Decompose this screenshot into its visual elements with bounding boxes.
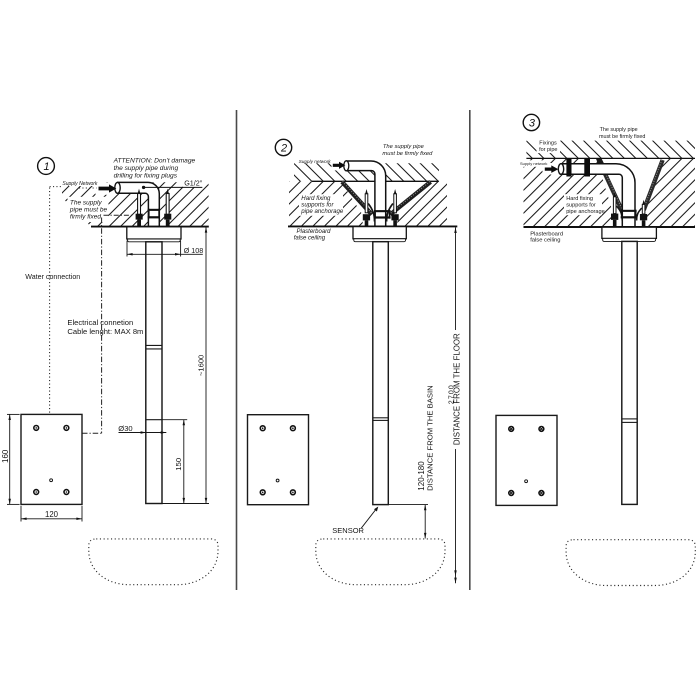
svg-text:Cable lenght: MAX 8m: Cable lenght: MAX 8m: [67, 327, 143, 336]
svg-text:The supply pipe: The supply pipe: [600, 127, 638, 133]
svg-text:Supply Network: Supply Network: [62, 181, 98, 187]
svg-text:ATTENTION: Don’t damage: ATTENTION: Don’t damage: [113, 157, 196, 164]
svg-text:Supply network: Supply network: [520, 161, 547, 166]
svg-text:G1/2”: G1/2”: [184, 179, 203, 188]
svg-text:Water connection: Water connection: [25, 273, 80, 281]
svg-text:150: 150: [174, 458, 183, 471]
svg-text:pipe must be: pipe must be: [69, 207, 108, 214]
svg-text:The supply pipe: The supply pipe: [383, 144, 425, 150]
svg-text:3: 3: [529, 118, 536, 130]
svg-text:Ø30: Ø30: [118, 424, 132, 433]
svg-text:must be firmly fixed: must be firmly fixed: [382, 151, 433, 157]
svg-text:The supply: The supply: [70, 199, 103, 206]
svg-text:DISTANCE FROM THE FLOOR: DISTANCE FROM THE FLOOR: [452, 333, 461, 445]
svg-text:120: 120: [45, 510, 59, 519]
svg-text:Plasterboard: Plasterboard: [297, 229, 332, 235]
svg-text:DISTANCE FROM THE BASIN: DISTANCE FROM THE BASIN: [426, 385, 435, 491]
svg-text:pipe anchorage: pipe anchorage: [300, 208, 344, 215]
svg-text:false ceiling: false ceiling: [530, 238, 560, 244]
svg-text:for pipe: for pipe: [539, 147, 557, 153]
svg-text:firmly fixed: firmly fixed: [70, 214, 101, 221]
svg-text:Electrical connetion: Electrical connetion: [67, 318, 133, 327]
svg-text:Fixings: Fixings: [539, 141, 557, 147]
svg-text:must be firmly fixed: must be firmly fixed: [599, 134, 645, 140]
svg-text:Hard fixing: Hard fixing: [566, 196, 593, 202]
svg-text:supports for: supports for: [566, 202, 596, 208]
svg-text:drilling for fixing plugs: drilling for fixing plugs: [114, 173, 178, 180]
svg-text:2: 2: [280, 143, 287, 155]
svg-text:Plasterboard: Plasterboard: [530, 231, 563, 237]
svg-text:SENSOR: SENSOR: [332, 526, 364, 535]
svg-text:the supply pipe during: the supply pipe during: [114, 165, 179, 172]
svg-text:1: 1: [43, 161, 49, 173]
svg-text:false ceiling: false ceiling: [294, 236, 326, 242]
svg-text:~1600: ~1600: [196, 355, 205, 376]
svg-text:Supply network: Supply network: [299, 159, 332, 164]
svg-text:pipe anchorage: pipe anchorage: [566, 209, 605, 215]
svg-text:Ø 108: Ø 108: [184, 246, 204, 255]
svg-text:160: 160: [1, 449, 10, 463]
